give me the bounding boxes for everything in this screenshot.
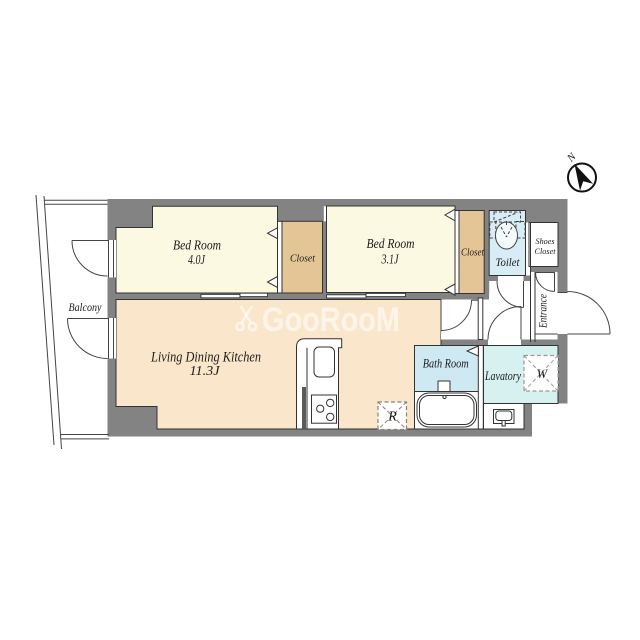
svg-text:Closet: Closet — [290, 253, 316, 265]
svg-text:Balcony: Balcony — [69, 300, 103, 314]
svg-text:W: W — [537, 367, 549, 381]
svg-text:GooRooM: GooRooM — [262, 301, 400, 339]
svg-text:Entrance: Entrance — [538, 294, 550, 329]
svg-text:Closet: Closet — [461, 248, 485, 259]
svg-text:Bed Room: Bed Room — [367, 237, 415, 252]
svg-text:Closet: Closet — [535, 246, 557, 256]
svg-text:R: R — [387, 410, 397, 425]
svg-text:Toilet: Toilet — [496, 257, 521, 269]
svg-text:Bed Room: Bed Room — [173, 239, 221, 254]
svg-text:Bath Room: Bath Room — [423, 355, 469, 370]
svg-text:Shoes: Shoes — [536, 236, 556, 246]
svg-text:4.0J: 4.0J — [188, 253, 206, 268]
svg-text:11.3J: 11.3J — [190, 364, 221, 379]
svg-text:3.1J: 3.1J — [381, 253, 399, 268]
svg-text:Lavatory: Lavatory — [484, 368, 521, 383]
